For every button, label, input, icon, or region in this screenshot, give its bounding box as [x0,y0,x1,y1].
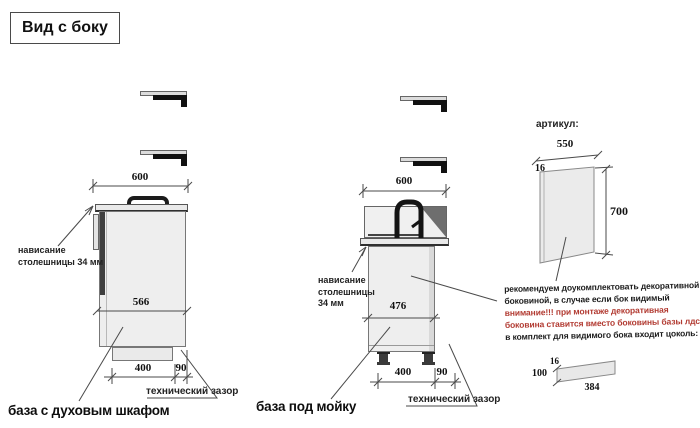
side-panel-shape [540,167,594,263]
dim-label-400-middle: 400 [383,366,423,378]
overhang-arrow-middle [352,247,366,272]
dim-label-90-middle: 90 [429,366,455,378]
dim-label-400-left: 400 [123,362,163,374]
sink-cabinet-body [368,246,435,352]
sink-countertop [360,238,449,246]
side-view-drawing: Вид с боку [0,0,700,428]
article-label: артикул: [536,119,579,130]
bracket-arm [441,161,447,173]
overhang-note-left: нависание столешницы 34 мм [18,245,103,268]
overhang-arrow-left [58,206,93,246]
bracket-arm [441,100,447,112]
dim-label-550: 550 [545,138,585,150]
dim-label-90-left: 90 [168,362,194,374]
dim-label-700: 700 [610,204,628,219]
overhang-note-line: нависание [318,275,375,287]
countertop-bracket-icon [400,96,448,118]
dim-label-600-middle: 600 [384,175,424,187]
dim-label-384-plinth: 384 [577,382,607,393]
sink-cabinet-side-band [429,247,434,351]
overhang-note-line: 34 мм [318,298,375,310]
sink-bowl [364,206,447,238]
adjustable-leg-icon [424,352,433,365]
sink-cabinet-label: база под мойку [256,399,356,414]
oven-cabinet-label: база с духовым шкафом [8,403,169,418]
overhang-note-middle: нависание столешницы 34 мм [318,275,375,310]
dim-label-100-plinth: 100 [532,368,547,379]
page-title-text: Вид с боку [22,19,108,36]
oven-cabinet-body [99,211,186,347]
oven-door-line [106,212,107,346]
panel-leader [556,237,566,281]
dim-label-566: 566 [121,296,161,308]
dim-label-16-plinth: 16 [550,356,559,366]
countertop-bracket-icon [140,91,188,113]
plinth-ticks [553,365,561,386]
overhang-note-line: столешницы [318,287,375,299]
dim-label-16-panel: 16 [535,163,545,174]
gap-label-left: технический зазор [146,386,238,397]
countertop-bracket-icon [140,150,188,172]
overhang-note-line: столешницы 34 мм [18,257,103,269]
bracket-arm [181,95,187,107]
overhang-note-line: нависание [18,245,103,257]
dim-label-600-left: 600 [120,171,160,183]
side-panel-note: рекомендуем доукомплектовать декоративно… [504,279,700,343]
oven-plinth [112,347,173,361]
page-title: Вид с боку [10,12,120,44]
gap-label-middle: технический зазор [408,394,500,405]
dim-label-476: 476 [378,300,418,312]
sink-cabinet-bottom-line [369,345,434,346]
bracket-arm [181,154,187,166]
plinth-shape [557,361,615,382]
adjustable-leg-icon [379,352,388,365]
